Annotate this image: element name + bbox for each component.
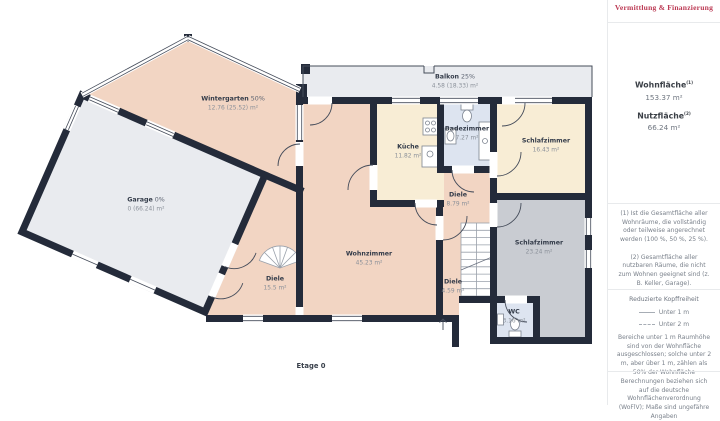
sidebar: Vermittlung & Finanzierung Wohnfläche(1)…: [607, 0, 720, 405]
floorplan: Balkon25% 4.58 (18.33) m² Wintergarten50…: [0, 0, 607, 405]
divider: [608, 289, 720, 290]
bath-toilet-icon: [463, 110, 472, 122]
dashed-line-sample: [639, 324, 655, 325]
stove-icon: [423, 118, 438, 135]
stat-nutzflaeche: Nutzfläche(2) 66.24 m²: [614, 111, 714, 133]
room-fill-schlafzimmer-1: [497, 104, 585, 200]
divider: [608, 203, 720, 204]
wc-toilet-tank: [509, 331, 521, 337]
floorplan-drawing: [0, 0, 607, 405]
legend-item-under-2m: Unter 2 m: [615, 321, 713, 328]
room-fill-balkon: [303, 66, 592, 97]
divider: [608, 22, 720, 23]
divider: [608, 371, 720, 372]
outside-notch: [459, 303, 490, 344]
solid-line-sample: [639, 312, 655, 313]
legend-title: Reduzierte Kopffreiheit: [615, 296, 713, 303]
footnotes: (1) Ist die Gesamtfläche aller Wohnräume…: [616, 210, 712, 298]
wc-basin-icon: [498, 314, 504, 325]
disclaimer: Berechnungen beziehen sich auf die deuts…: [616, 378, 712, 421]
stat-wohnflaeche: Wohnfläche(1) 153.37 m²: [614, 80, 714, 102]
footnote-2: (2) Gesamtfläche aller nutzbaren Räume, …: [616, 254, 712, 289]
headroom-legend: Reduzierte Kopffreiheit Unter 1 m Unter …: [615, 296, 713, 377]
footnote-1: (1) Ist die Gesamtfläche aller Wohnräume…: [616, 210, 712, 245]
bath-toilet-tank: [461, 104, 473, 110]
floor-label: Etage 0: [296, 362, 325, 370]
brand-tagline: Vermittlung & Finanzierung: [610, 3, 718, 12]
legend-item-under-1m: Unter 1 m: [615, 309, 713, 316]
stairs: [461, 223, 492, 302]
area-stats: Wohnfläche(1) 153.37 m² Nutzfläche(2) 66…: [614, 80, 714, 141]
